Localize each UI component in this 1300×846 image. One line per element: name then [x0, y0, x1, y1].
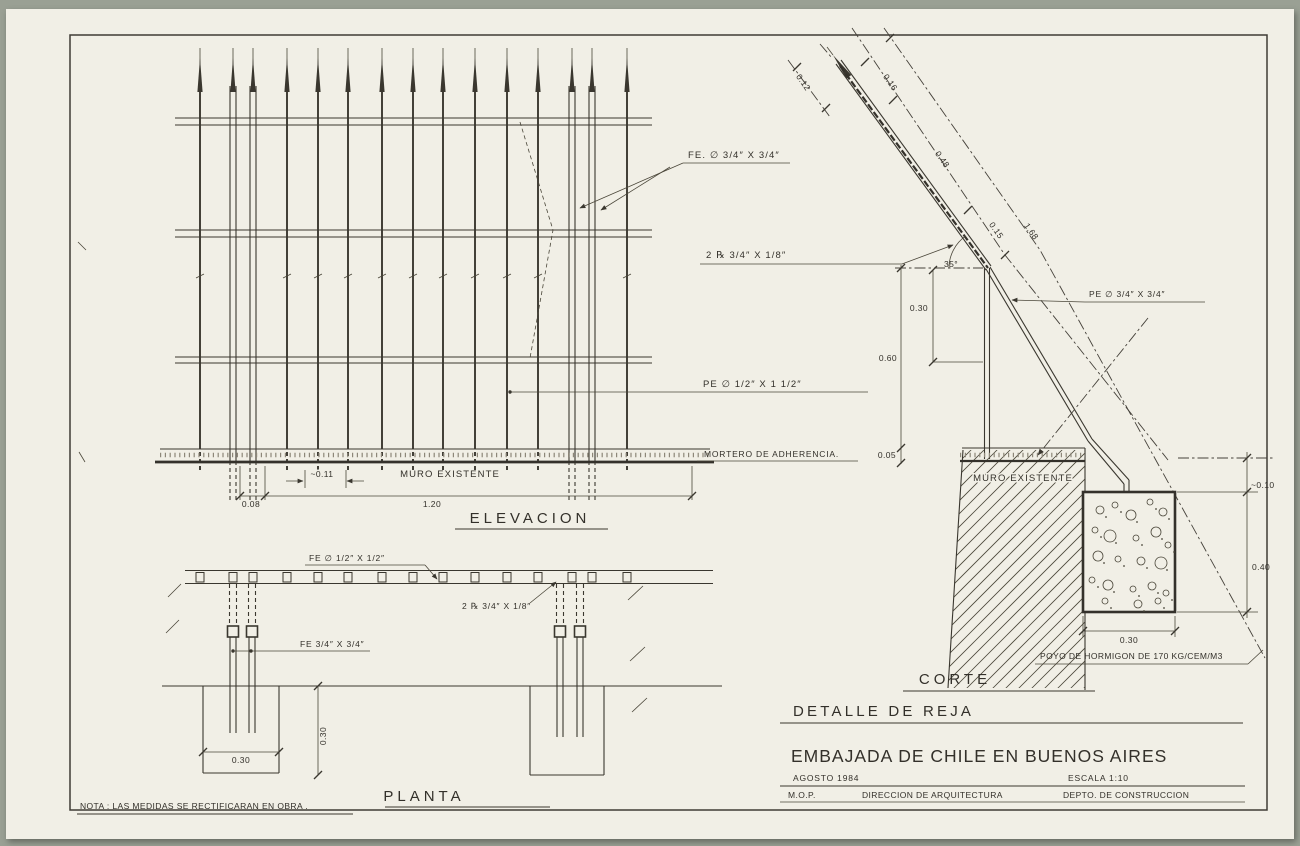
- dim-030-upper: 0.30: [910, 303, 928, 313]
- muro-existente-corte: MURO EXISTENTE: [973, 473, 1073, 484]
- margin-mark: [78, 242, 86, 250]
- dim-016: 0.16: [881, 72, 900, 93]
- corte-title: CORTE: [919, 671, 991, 688]
- label-2-pl-plan: 2 ℞ 3/4″ X 1/8″: [462, 601, 531, 611]
- project-title: EMBAJADA DE CHILE EN BUENOS AIRES: [791, 746, 1167, 766]
- muro-existente-label: MURO EXISTENTE: [400, 469, 500, 480]
- technical-drawing: 0.08 ~0.11 1.20 MURO EXISTENTE FE. ∅ 3/4…: [0, 0, 1300, 846]
- date-label: AGOSTO 1984: [793, 773, 859, 783]
- dim-120: 1.20: [423, 499, 441, 509]
- dimension-ticks: [199, 34, 1251, 779]
- dim-008: 0.08: [242, 499, 260, 509]
- dim-011: ~0.11: [311, 469, 334, 479]
- label-pe34-corte: PE ∅ 3/4″ X 3/4″: [1089, 289, 1165, 299]
- planta-title: PLANTA: [383, 788, 464, 805]
- label-2-pl: 2 ℞ 3/4″ X 1/8″: [706, 250, 786, 261]
- dim-010: ~0.10: [1251, 480, 1275, 490]
- plan-view: 0.30 0.30 FE ∅ 1/2″ X 1/2″ 2 ℞ 3/4″ X 1/…: [162, 553, 722, 807]
- break-marks: [166, 584, 647, 712]
- plan-posts: [228, 584, 586, 737]
- label-fe-34: FE. ∅ 3/4″ X 3/4″: [688, 150, 780, 161]
- plan-dimensions: [203, 686, 318, 775]
- label-pe-half: PE ∅ 1/2″ X 1 1/2″: [703, 379, 802, 390]
- scanned-blueprint-page: 0.08 ~0.11 1.20 MURO EXISTENTE FE. ∅ 3/4…: [0, 0, 1300, 846]
- inclined-bar: [827, 47, 991, 270]
- bar-sections: [196, 573, 631, 583]
- elevacion-title: ELEVACION: [470, 510, 591, 527]
- margin-mark: [79, 452, 85, 462]
- subtitle-detalle: DETALLE DE REJA: [793, 703, 974, 720]
- dim-030-vertical: 0.30: [318, 727, 328, 745]
- org-direccion: DIRECCION DE ARQUITECTURA: [862, 790, 1003, 800]
- dim-015: 0.15: [987, 220, 1006, 241]
- dim-048: 0.48: [933, 149, 952, 170]
- foundation-right: [530, 686, 604, 775]
- dim-030-base: 0.30: [1120, 635, 1138, 645]
- elevation-view: 0.08 ~0.11 1.20 MURO EXISTENTE FE. ∅ 3/4…: [155, 48, 953, 529]
- rectification-note: NOTA : LAS MEDIDAS SE RECTIFICARAN EN OB…: [80, 801, 308, 811]
- zigzag-leader: [520, 122, 553, 358]
- dim-005: 0.05: [878, 450, 896, 460]
- label-mortero: MORTERO DE ADHERENCIA.: [704, 449, 839, 459]
- dim-012: 0.12: [794, 72, 813, 93]
- org-depto: DEPTO. DE CONSTRUCCION: [1063, 790, 1189, 800]
- dim-168: 1.68: [1022, 221, 1041, 242]
- title-block: DETALLE DE REJA EMBAJADA DE CHILE EN BUE…: [780, 703, 1245, 802]
- label-fe-half-plan: FE ∅ 1/2″ X 1/2″: [309, 553, 385, 563]
- fence-bars: [196, 48, 631, 500]
- angle-35: 35°: [944, 259, 958, 269]
- org-mop: M.O.P.: [788, 790, 816, 800]
- dim-030-horizontal: 0.30: [232, 755, 250, 765]
- dim-040: 0.40: [1252, 562, 1270, 572]
- section-view: 35° 0.12 0.16 0.48 0.15 1.68 0.30: [690, 28, 1300, 692]
- vertical-post: [985, 268, 990, 459]
- dim-060: 0.60: [879, 353, 897, 363]
- label-poyo: POYO DE HORMIGON DE 170 KG/CEM/M3: [1040, 651, 1223, 661]
- scale-label: ESCALA 1:10: [1068, 773, 1129, 783]
- label-fe34-plan: FE 3/4″ X 3/4″: [300, 639, 364, 649]
